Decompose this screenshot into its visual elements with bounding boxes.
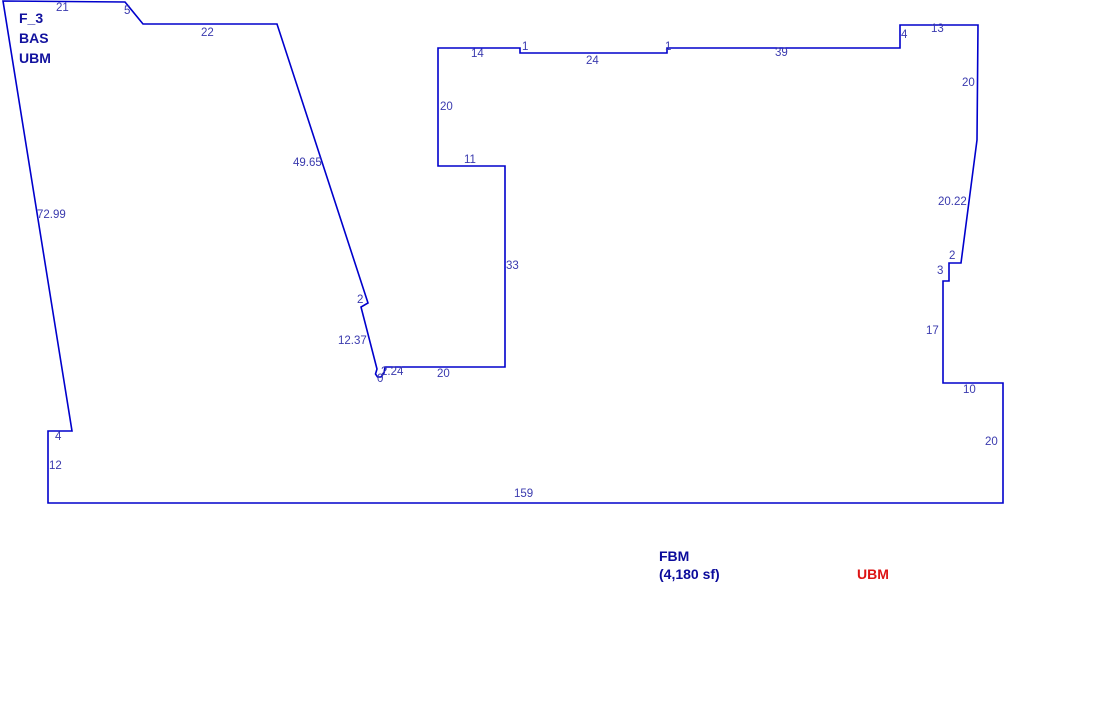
dimension-label: 17 xyxy=(926,325,939,337)
dimension-label: 1 xyxy=(522,41,528,53)
dimension-label: 12 xyxy=(49,460,62,472)
dimension-label: 39 xyxy=(775,47,788,59)
dimension-label: 22 xyxy=(201,27,214,39)
dimension-label: 13 xyxy=(931,23,944,35)
dimension-label: 24 xyxy=(586,55,599,67)
dimension-label: 4 xyxy=(55,431,62,443)
floor-plan-sketch: F_3BASUBM 2152249.6572.99212.372.2402033… xyxy=(0,0,1097,719)
dimension-label: 2.24 xyxy=(381,366,404,378)
dimension-label: 20 xyxy=(437,368,450,380)
area-title-line: UBM xyxy=(19,50,51,66)
ubm-area-label: UBM xyxy=(857,566,889,582)
dimension-label: 5 xyxy=(124,5,130,17)
floor-outline xyxy=(3,1,1003,503)
area-title-line: BAS xyxy=(19,30,49,46)
sketch-canvas: F_3BASUBM 2152249.6572.99212.372.2402033… xyxy=(0,0,1097,719)
dimension-label: 20.22 xyxy=(938,196,967,208)
dimension-label: 72.99 xyxy=(37,209,66,221)
fbm-area-sqft: (4,180 sf) xyxy=(659,566,720,582)
dimension-label: 10 xyxy=(963,384,976,396)
dimension-label: 21 xyxy=(56,2,69,14)
dimension-label: 159 xyxy=(514,488,533,500)
dimension-label: 2 xyxy=(949,250,955,262)
dimension-label: 33 xyxy=(506,260,519,272)
fbm-area-label: FBM xyxy=(659,548,689,564)
dimension-label: 3 xyxy=(937,265,943,277)
dimension-label: 14 xyxy=(471,48,484,60)
dimension-label: 0 xyxy=(377,373,383,385)
dimension-label: 11 xyxy=(464,154,476,166)
dimension-label: 12.37 xyxy=(338,335,367,347)
dimension-label: 20 xyxy=(985,436,998,448)
dimension-label: 2 xyxy=(357,294,363,306)
dimension-label: 1 xyxy=(665,41,671,53)
dimension-label: 4 xyxy=(901,29,908,41)
area-title-line: F_3 xyxy=(19,10,43,26)
footer-labels: FBM (4,180 sf) UBM xyxy=(659,548,889,582)
dimension-label: 20 xyxy=(440,101,453,113)
area-title-block: F_3BASUBM xyxy=(19,10,51,66)
dimension-label: 49.65 xyxy=(293,157,322,169)
dimension-labels: 2152249.6572.99212.372.24020331120141241… xyxy=(37,2,998,500)
dimension-label: 20 xyxy=(962,77,975,89)
